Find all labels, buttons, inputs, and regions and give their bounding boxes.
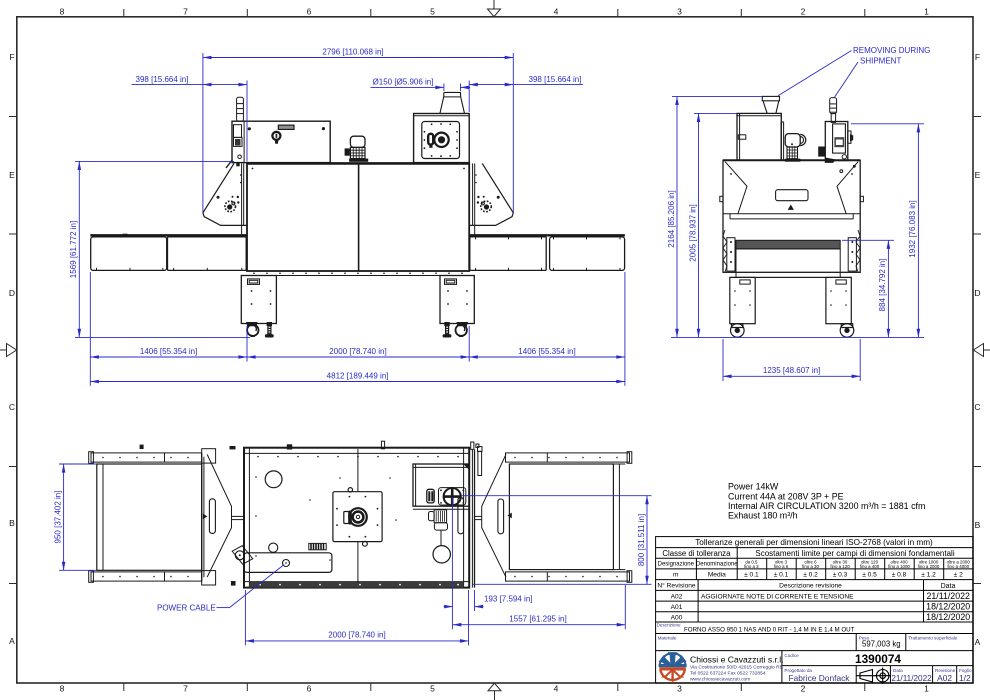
svg-text:REMOVING DURING: REMOVING DURING: [853, 46, 930, 55]
svg-text:2005 [78.937 in]: 2005 [78.937 in]: [688, 204, 697, 261]
svg-text:A00: A00: [671, 615, 683, 622]
svg-text:C: C: [9, 402, 15, 412]
svg-text:Denominazione: Denominazione: [696, 562, 738, 568]
svg-text:Current 44A at 208V 3P + PE: Current 44A at 208V 3P + PE: [728, 491, 844, 501]
svg-text:Power 14kW: Power 14kW: [728, 482, 779, 492]
svg-text:Chiossi e Cavazzuti s.r.l.: Chiossi e Cavazzuti s.r.l.: [690, 655, 784, 665]
svg-text:Codice: Codice: [784, 653, 799, 658]
svg-text:5: 5: [430, 7, 435, 17]
svg-text:www.chiossiecavazzuti.com: www.chiossiecavazzuti.com: [690, 677, 750, 683]
svg-text:Foglio: Foglio: [959, 668, 972, 673]
svg-text:E: E: [975, 170, 981, 180]
svg-text:FORNO ASSO 950 1 NAS AND 0 RIT: FORNO ASSO 950 1 NAS AND 0 RIT - 1,4 M I…: [684, 626, 855, 633]
svg-text:AGGIORNATE NOTE DI CORRENTE E: AGGIORNATE NOTE DI CORRENTE E TENSIONE: [701, 593, 854, 600]
svg-text:1: 1: [924, 684, 929, 694]
svg-text:± 1.2: ± 1.2: [921, 572, 936, 579]
svg-text:6: 6: [307, 684, 312, 694]
svg-text:A: A: [9, 636, 15, 646]
svg-text:D: D: [9, 288, 15, 298]
svg-text:1406 [55.354 in]: 1406 [55.354 in]: [140, 347, 197, 356]
svg-text:F: F: [975, 52, 980, 62]
svg-text:1: 1: [924, 7, 929, 17]
svg-text:21/11/2022: 21/11/2022: [891, 674, 932, 683]
svg-text:D: D: [974, 288, 980, 298]
svg-text:fino a 400: fino a 400: [860, 564, 880, 569]
svg-text:2796 [110.068 in]: 2796 [110.068 in]: [322, 48, 383, 57]
svg-text:Materiale: Materiale: [658, 636, 677, 641]
svg-text:± 2: ± 2: [954, 572, 963, 579]
svg-text:fino a 3: fino a 3: [744, 564, 759, 569]
svg-text:E: E: [9, 170, 15, 180]
svg-text:7: 7: [183, 7, 188, 17]
svg-text:Via Costituzione 50/D 42015 Co: Via Costituzione 50/D 42015 Correggio RE: [690, 665, 784, 671]
svg-text:± 0.8: ± 0.8: [892, 572, 907, 579]
svg-text:C: C: [974, 402, 980, 412]
svg-text:Fabrice Donfack: Fabrice Donfack: [789, 673, 851, 683]
svg-text:fino a 120: fino a 120: [830, 564, 850, 569]
svg-text:A02: A02: [671, 593, 683, 600]
svg-text:m: m: [673, 572, 679, 579]
svg-text:1932 [76.083 in]: 1932 [76.083 in]: [908, 200, 917, 257]
svg-text:Trattamento superficiale: Trattamento superficiale: [908, 636, 958, 641]
svg-text:597,003 kg: 597,003 kg: [862, 640, 901, 649]
svg-text:1569 [61.772 in]: 1569 [61.772 in]: [69, 221, 78, 278]
svg-text:4: 4: [554, 7, 559, 17]
svg-text:8: 8: [60, 7, 65, 17]
svg-text:Data: Data: [893, 668, 903, 673]
svg-text:193 [7.594 in]: 193 [7.594 in]: [484, 595, 532, 604]
svg-text:Internal AIR CIRCULATION 3200: Internal AIR CIRCULATION 3200 m³/h = 188…: [728, 501, 925, 511]
svg-text:4: 4: [554, 684, 559, 694]
svg-text:5: 5: [430, 684, 435, 694]
svg-text:1557 [61.295 in]: 1557 [61.295 in]: [509, 614, 566, 623]
svg-text:2: 2: [801, 7, 806, 17]
svg-text:Revisione: Revisione: [935, 668, 956, 673]
svg-text:1/2: 1/2: [959, 673, 971, 683]
svg-text:SHIPMENT: SHIPMENT: [860, 57, 901, 66]
svg-text:A: A: [975, 637, 981, 647]
svg-text:fino a 1000: fino a 1000: [888, 564, 910, 569]
svg-text:Exhaust 180 m³/h: Exhaust 180 m³/h: [728, 511, 798, 521]
svg-text:1235 [48.607 in]: 1235 [48.607 in]: [763, 366, 820, 375]
svg-text:Progettato da: Progettato da: [784, 668, 812, 673]
svg-text:1406 [55.354 in]: 1406 [55.354 in]: [518, 347, 575, 356]
svg-text:7: 7: [183, 684, 188, 694]
svg-text:8: 8: [60, 684, 65, 694]
svg-text:B: B: [9, 518, 15, 528]
svg-text:18/12/2020: 18/12/2020: [926, 612, 970, 622]
svg-text:Ø150 [Ø5.906 in]: Ø150 [Ø5.906 in]: [373, 77, 434, 86]
svg-text:Scostamenti limite per campi d: Scostamenti limite per campi di dimensio…: [755, 549, 954, 558]
svg-text:2164 [85.206 in]: 2164 [85.206 in]: [667, 190, 676, 247]
svg-text:N° Revisione: N° Revisione: [657, 582, 696, 590]
svg-text:A01: A01: [671, 604, 683, 611]
svg-text:± 0.2: ± 0.2: [803, 572, 818, 579]
svg-text:fino a 4000: fino a 4000: [947, 564, 969, 569]
svg-text:F: F: [9, 52, 14, 62]
svg-text:4812 [189.449 in]: 4812 [189.449 in]: [327, 371, 389, 380]
svg-text:± 0.5: ± 0.5: [862, 572, 877, 579]
svg-text:B: B: [975, 520, 981, 530]
svg-text:A02: A02: [937, 673, 952, 683]
svg-text:Tel 0522 637224 Fax 0522 73285: Tel 0522 637224 Fax 0522 732854: [690, 671, 766, 677]
svg-text:18/12/2020: 18/12/2020: [926, 601, 970, 611]
svg-text:800 [31.511 in]: 800 [31.511 in]: [637, 514, 646, 566]
svg-text:Tolleranze generali per dimens: Tolleranze generali per dimensioni linea…: [695, 538, 933, 547]
svg-text:1390074: 1390074: [855, 652, 901, 666]
svg-text:3: 3: [677, 7, 682, 17]
svg-text:Descrizione revisione: Descrizione revisione: [779, 583, 842, 590]
svg-text:fino a 6: fino a 6: [774, 564, 789, 569]
svg-text:21/11/2022: 21/11/2022: [927, 591, 970, 601]
svg-text:3: 3: [677, 684, 682, 694]
svg-text:6: 6: [307, 7, 312, 17]
svg-text:884 [34.792 in]: 884 [34.792 in]: [878, 259, 887, 312]
svg-text:Classe di tolleranza: Classe di tolleranza: [662, 549, 731, 558]
svg-text:398 [15.664 in]: 398 [15.664 in]: [136, 75, 189, 84]
svg-text:398 [15.664 in]: 398 [15.664 in]: [529, 75, 582, 84]
svg-text:Descrizione: Descrizione: [657, 623, 681, 628]
svg-text:950 [37.402 in]: 950 [37.402 in]: [53, 491, 62, 544]
svg-text:Media: Media: [708, 572, 726, 579]
svg-text:± 0.1: ± 0.1: [744, 572, 759, 579]
svg-text:2000 [78.740 in]: 2000 [78.740 in]: [329, 347, 386, 356]
svg-text:2: 2: [801, 684, 806, 694]
svg-text:Data: Data: [941, 583, 956, 590]
svg-text:fino a 30: fino a 30: [802, 564, 819, 569]
svg-text:Designazione: Designazione: [658, 562, 695, 568]
svg-text:fino a 2000: fino a 2000: [918, 564, 940, 569]
svg-text:± 0.1: ± 0.1: [774, 572, 789, 579]
svg-text:± 0.3: ± 0.3: [833, 572, 848, 579]
svg-text:POWER CABLE: POWER CABLE: [157, 604, 216, 613]
svg-text:2000 [78.740 in]: 2000 [78.740 in]: [328, 631, 385, 640]
